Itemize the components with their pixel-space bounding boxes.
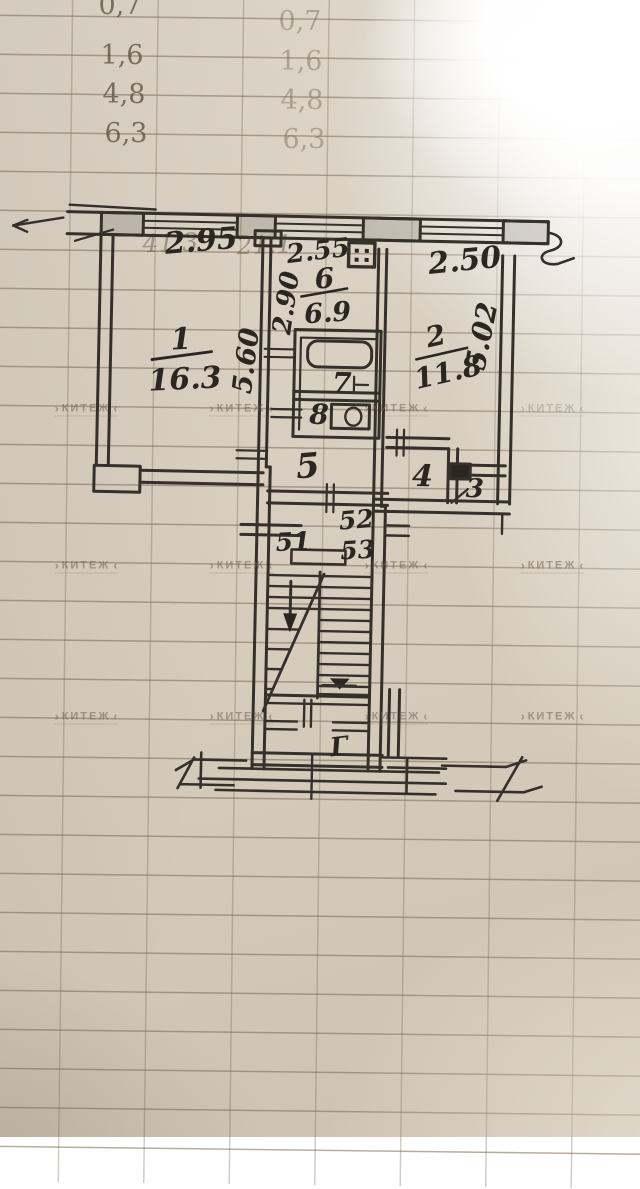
watermark-subtext [210,573,273,577]
watermark-text: КИТЕЖ [372,403,421,414]
agency-watermark: ›КИТЕЖ‹ [365,560,428,577]
window-kitchen [275,224,363,233]
watermark-arrow-left: › [55,560,59,572]
dim-room1-depth: 5.60 [227,326,266,395]
room2-label: 2 11.8 [403,312,485,396]
watermark-subtext [365,416,428,420]
hall-number: 4 [412,459,434,494]
watermark-arrow-right: ‹ [268,560,272,572]
agency-watermark: ›КИТЕЖ‹ [210,560,273,577]
watermark-arrow-left: › [210,403,214,415]
watermark-text: КИТЕЖ [62,403,111,414]
stove-icon [348,243,374,268]
bathroom-block [293,329,381,438]
floor-plan-drawing: 0,7 1,6 4,8 6,3 0,7 1,6 4,8 6,3 41.3 21.… [0,0,640,1137]
watermark-arrow-right: ‹ [579,560,583,572]
watermark-subtext [365,724,428,728]
watermark-arrow-left: › [55,403,59,415]
agency-watermark: ›КИТЕЖ‹ [521,403,584,420]
watermark-subtext [210,724,273,728]
watermark-arrow-left: › [521,560,525,572]
agency-watermark: ›КИТЕЖ‹ [365,403,428,420]
watermark-arrow-right: ‹ [113,403,117,415]
paper-background [0,0,640,1137]
faint-total: 41.3 [141,228,199,259]
dimension-labels: 2.95 2.55 2.50 2.90 5.60 5.02 [159,219,506,400]
room2-number: 2 [422,318,449,355]
ledger-value: 0,7 [99,0,142,21]
agency-watermark: ›КИТЕЖ‹ [55,711,118,728]
dim-room2-depth: 5.02 [459,299,505,372]
dim-kitchen-width: 2.55 [284,233,351,270]
watermark-subtext [521,724,584,728]
break-squiggle [542,233,574,265]
watermark-text: КИТЕЖ [372,711,421,722]
photo-of-floor-plan: { "meta": { "description": "Photograph o… [0,0,640,1137]
agency-watermark: ›КИТЕЖ‹ [365,711,428,728]
agency-watermark: ›КИТЕЖ‹ [55,403,118,420]
room1-number: 1 [170,322,193,358]
dim-room2-width: 2.50 [426,240,503,282]
stairwell [251,549,386,801]
ledger-value: 1,6 [101,40,144,71]
faint-partial: 21.1 [235,229,293,260]
watermark-arrow-right: ‹ [423,403,427,415]
room2-area: 11.8 [411,349,485,396]
room1-label: 1 16.3 [146,320,223,398]
watermark-text: КИТЕЖ [62,560,111,571]
agency-watermark: ›КИТЕЖ‹ [521,711,584,728]
watermark-text: КИТЕЖ [528,403,577,414]
right-wing-walls [373,253,515,534]
corridor-number: 5 [294,446,321,488]
ledger-value: 4,8 [281,85,324,116]
section-slash [75,229,113,242]
watermark-arrow-left: › [521,711,525,723]
watermark-arrow-right: ‹ [423,560,427,572]
watermark-arrow-right: ‹ [579,711,583,723]
photo-glare [0,0,640,1137]
watermark-subtext [55,573,118,577]
apartment-51: 51 [275,526,311,557]
room1-area: 16.3 [148,360,223,399]
watermark-layer: ›КИТЕЖ‹›КИТЕЖ‹›КИТЕЖ‹›КИТЕЖ‹›КИТЕЖ‹›КИТЕ… [0,0,640,1137]
watermark-arrow-right: ‹ [113,560,117,572]
landing-walls [241,482,410,538]
apartment-52: 52 [338,504,375,536]
window-room2 [420,227,503,236]
room1-east-wall [230,230,305,769]
watermark-arrow-left: › [521,403,525,415]
dimension-arrow-left [13,204,156,235]
stair-direction-arrow [290,581,291,619]
ledger-value: 1,6 [280,46,323,77]
vent-shaft [450,464,470,479]
north-wall [67,212,549,251]
watermark-arrow-right: ‹ [268,403,272,415]
entrance-steps [175,685,543,802]
balcony-step [94,465,141,492]
watermark-arrow-right: ‹ [423,711,427,723]
watermark-arrow-left: › [210,560,214,572]
agency-watermark: ›КИТЕЖ‹ [210,711,273,728]
ledger-value: 6,3 [105,118,148,149]
kitchen-number: 6 [314,261,336,295]
watermark-arrow-right: ‹ [579,403,583,415]
watermark-subtext [55,724,118,728]
watermark-text: КИТЕЖ [528,560,577,571]
closet-number: 3 [466,474,485,504]
watermark-text: КИТЕЖ [217,560,266,571]
kitchen-label: 6 6.9 [299,260,352,330]
ledger-value: 6,3 [283,124,326,155]
watermark-text: КИТЕЖ [372,560,421,571]
apartment-53: 53 [340,535,376,566]
ledger-value: 4,8 [103,79,146,110]
watermark-arrow-left: › [210,711,214,723]
watermark-arrow-left: › [365,560,369,572]
plan-ink: 41.3 21.1 [1,204,574,805]
agency-watermark: ›КИТЕЖ‹ [55,560,118,577]
watermark-text: КИТЕЖ [217,711,266,722]
bath-number: 7 [332,366,353,399]
watermark-arrow-left: › [365,403,369,415]
ledger-value: 0,7 [279,6,322,37]
watermark-arrow-left: › [55,711,59,723]
watermark-subtext [521,416,584,420]
entrance-mark: Г [328,731,352,763]
kitchen-area: 6.9 [303,296,352,330]
west-wall [94,234,268,494]
faint-printed-numbers: 41.3 21.1 [140,226,293,261]
watermark-text: КИТЕЖ [528,711,577,722]
watermark-text: КИТЕЖ [62,711,111,722]
watermark-subtext [210,416,273,420]
ledger-grid-lines [0,0,640,1189]
watermark-arrow-left: › [365,711,369,723]
dim-room1-width: 2.95 [162,221,239,262]
ledger-numbers: 0,7 1,6 4,8 6,3 0,7 1,6 4,8 6,3 [99,0,326,155]
watermark-subtext [521,573,584,577]
break-mark-right [441,756,542,802]
middle-east-wall [368,249,391,771]
agency-watermark: ›КИТЕЖ‹ [210,403,273,420]
watermark-subtext [55,416,118,420]
room-labels: 1 16.3 6 6.9 2 11.8 5 7 8 4 3 [142,256,489,504]
toilet-icon [331,404,369,429]
agency-watermark: ›КИТЕЖ‹ [521,560,584,577]
stair-cut-line [263,573,324,712]
watermark-arrow-right: ‹ [113,711,117,723]
watermark-arrow-right: ‹ [268,711,272,723]
wc-number: 8 [308,398,329,431]
apartment-numbers: 51 52 53 Г [270,502,377,764]
watermark-text: КИТЕЖ [217,403,266,414]
bathtub-icon [307,341,372,368]
window-room1 [143,221,237,230]
break-mark-left [176,757,247,789]
dim-kitchen-depth: 2.90 [267,269,306,337]
watermark-subtext [365,573,428,577]
